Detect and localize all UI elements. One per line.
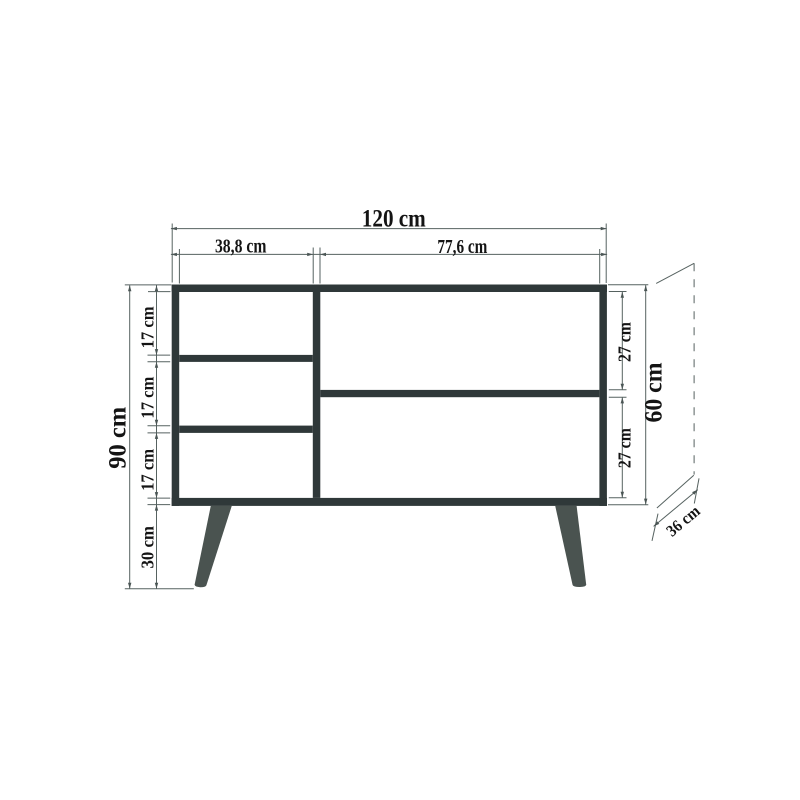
- svg-text:17 cm: 17 cm: [138, 449, 158, 491]
- svg-text:30 cm: 30 cm: [138, 526, 158, 569]
- svg-text:27 cm: 27 cm: [615, 322, 635, 362]
- svg-text:77,6 cm: 77,6 cm: [437, 237, 487, 258]
- svg-text:27 cm: 27 cm: [615, 428, 635, 468]
- svg-text:17 cm: 17 cm: [138, 306, 158, 348]
- svg-text:17 cm: 17 cm: [138, 376, 158, 418]
- svg-text:90 cm: 90 cm: [105, 407, 132, 469]
- svg-text:38,8 cm: 38,8 cm: [215, 237, 267, 258]
- svg-text:60 cm: 60 cm: [641, 362, 668, 422]
- svg-text:36 cm: 36 cm: [662, 501, 703, 540]
- svg-text:120 cm: 120 cm: [362, 206, 426, 233]
